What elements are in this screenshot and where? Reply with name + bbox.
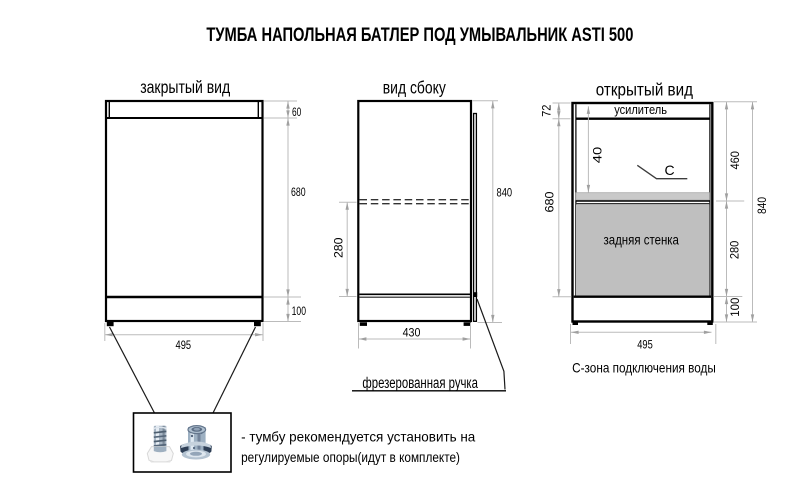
svg-text:40: 40 bbox=[590, 146, 604, 163]
svg-text:ТУМБА НАПОЛЬНАЯ БАТЛЕР ПОД УМЫ: ТУМБА НАПОЛЬНАЯ БАТЛЕР ПОД УМЫВАЛЬНИК AS… bbox=[206, 25, 633, 46]
svg-text:495: 495 bbox=[637, 340, 653, 352]
svg-text:вид сбоку: вид сбоку bbox=[383, 78, 446, 98]
svg-text:840: 840 bbox=[497, 187, 513, 199]
svg-text:72: 72 bbox=[540, 104, 554, 117]
svg-text:С: С bbox=[664, 162, 674, 178]
svg-text:- тумбу рекомендуется установи: - тумбу рекомендуется установить на bbox=[241, 428, 475, 444]
svg-text:840: 840 bbox=[755, 197, 769, 214]
svg-text:С-зона подключения воды: С-зона подключения воды bbox=[572, 361, 716, 376]
svg-text:680: 680 bbox=[291, 187, 306, 199]
svg-text:фрезерованная ручка: фрезерованная ручка bbox=[362, 375, 478, 392]
svg-text:430: 430 bbox=[403, 328, 421, 340]
svg-text:открытый вид: открытый вид bbox=[596, 79, 693, 99]
svg-text:закрытый вид: закрытый вид bbox=[140, 77, 230, 97]
svg-text:280: 280 bbox=[728, 240, 742, 259]
svg-text:280: 280 bbox=[331, 237, 345, 258]
svg-text:100: 100 bbox=[728, 297, 742, 316]
svg-text:задняя стенка: задняя стенка bbox=[603, 232, 679, 247]
svg-text:100: 100 bbox=[292, 306, 306, 318]
svg-text:680: 680 bbox=[543, 191, 557, 212]
svg-text:495: 495 bbox=[176, 340, 192, 352]
svg-text:60: 60 bbox=[292, 107, 301, 119]
svg-text:регулируемые опоры(идут в комп: регулируемые опоры(идут в комплекте) bbox=[241, 449, 460, 465]
svg-text:460: 460 bbox=[728, 151, 742, 170]
svg-text:усилитель: усилитель bbox=[614, 102, 667, 117]
